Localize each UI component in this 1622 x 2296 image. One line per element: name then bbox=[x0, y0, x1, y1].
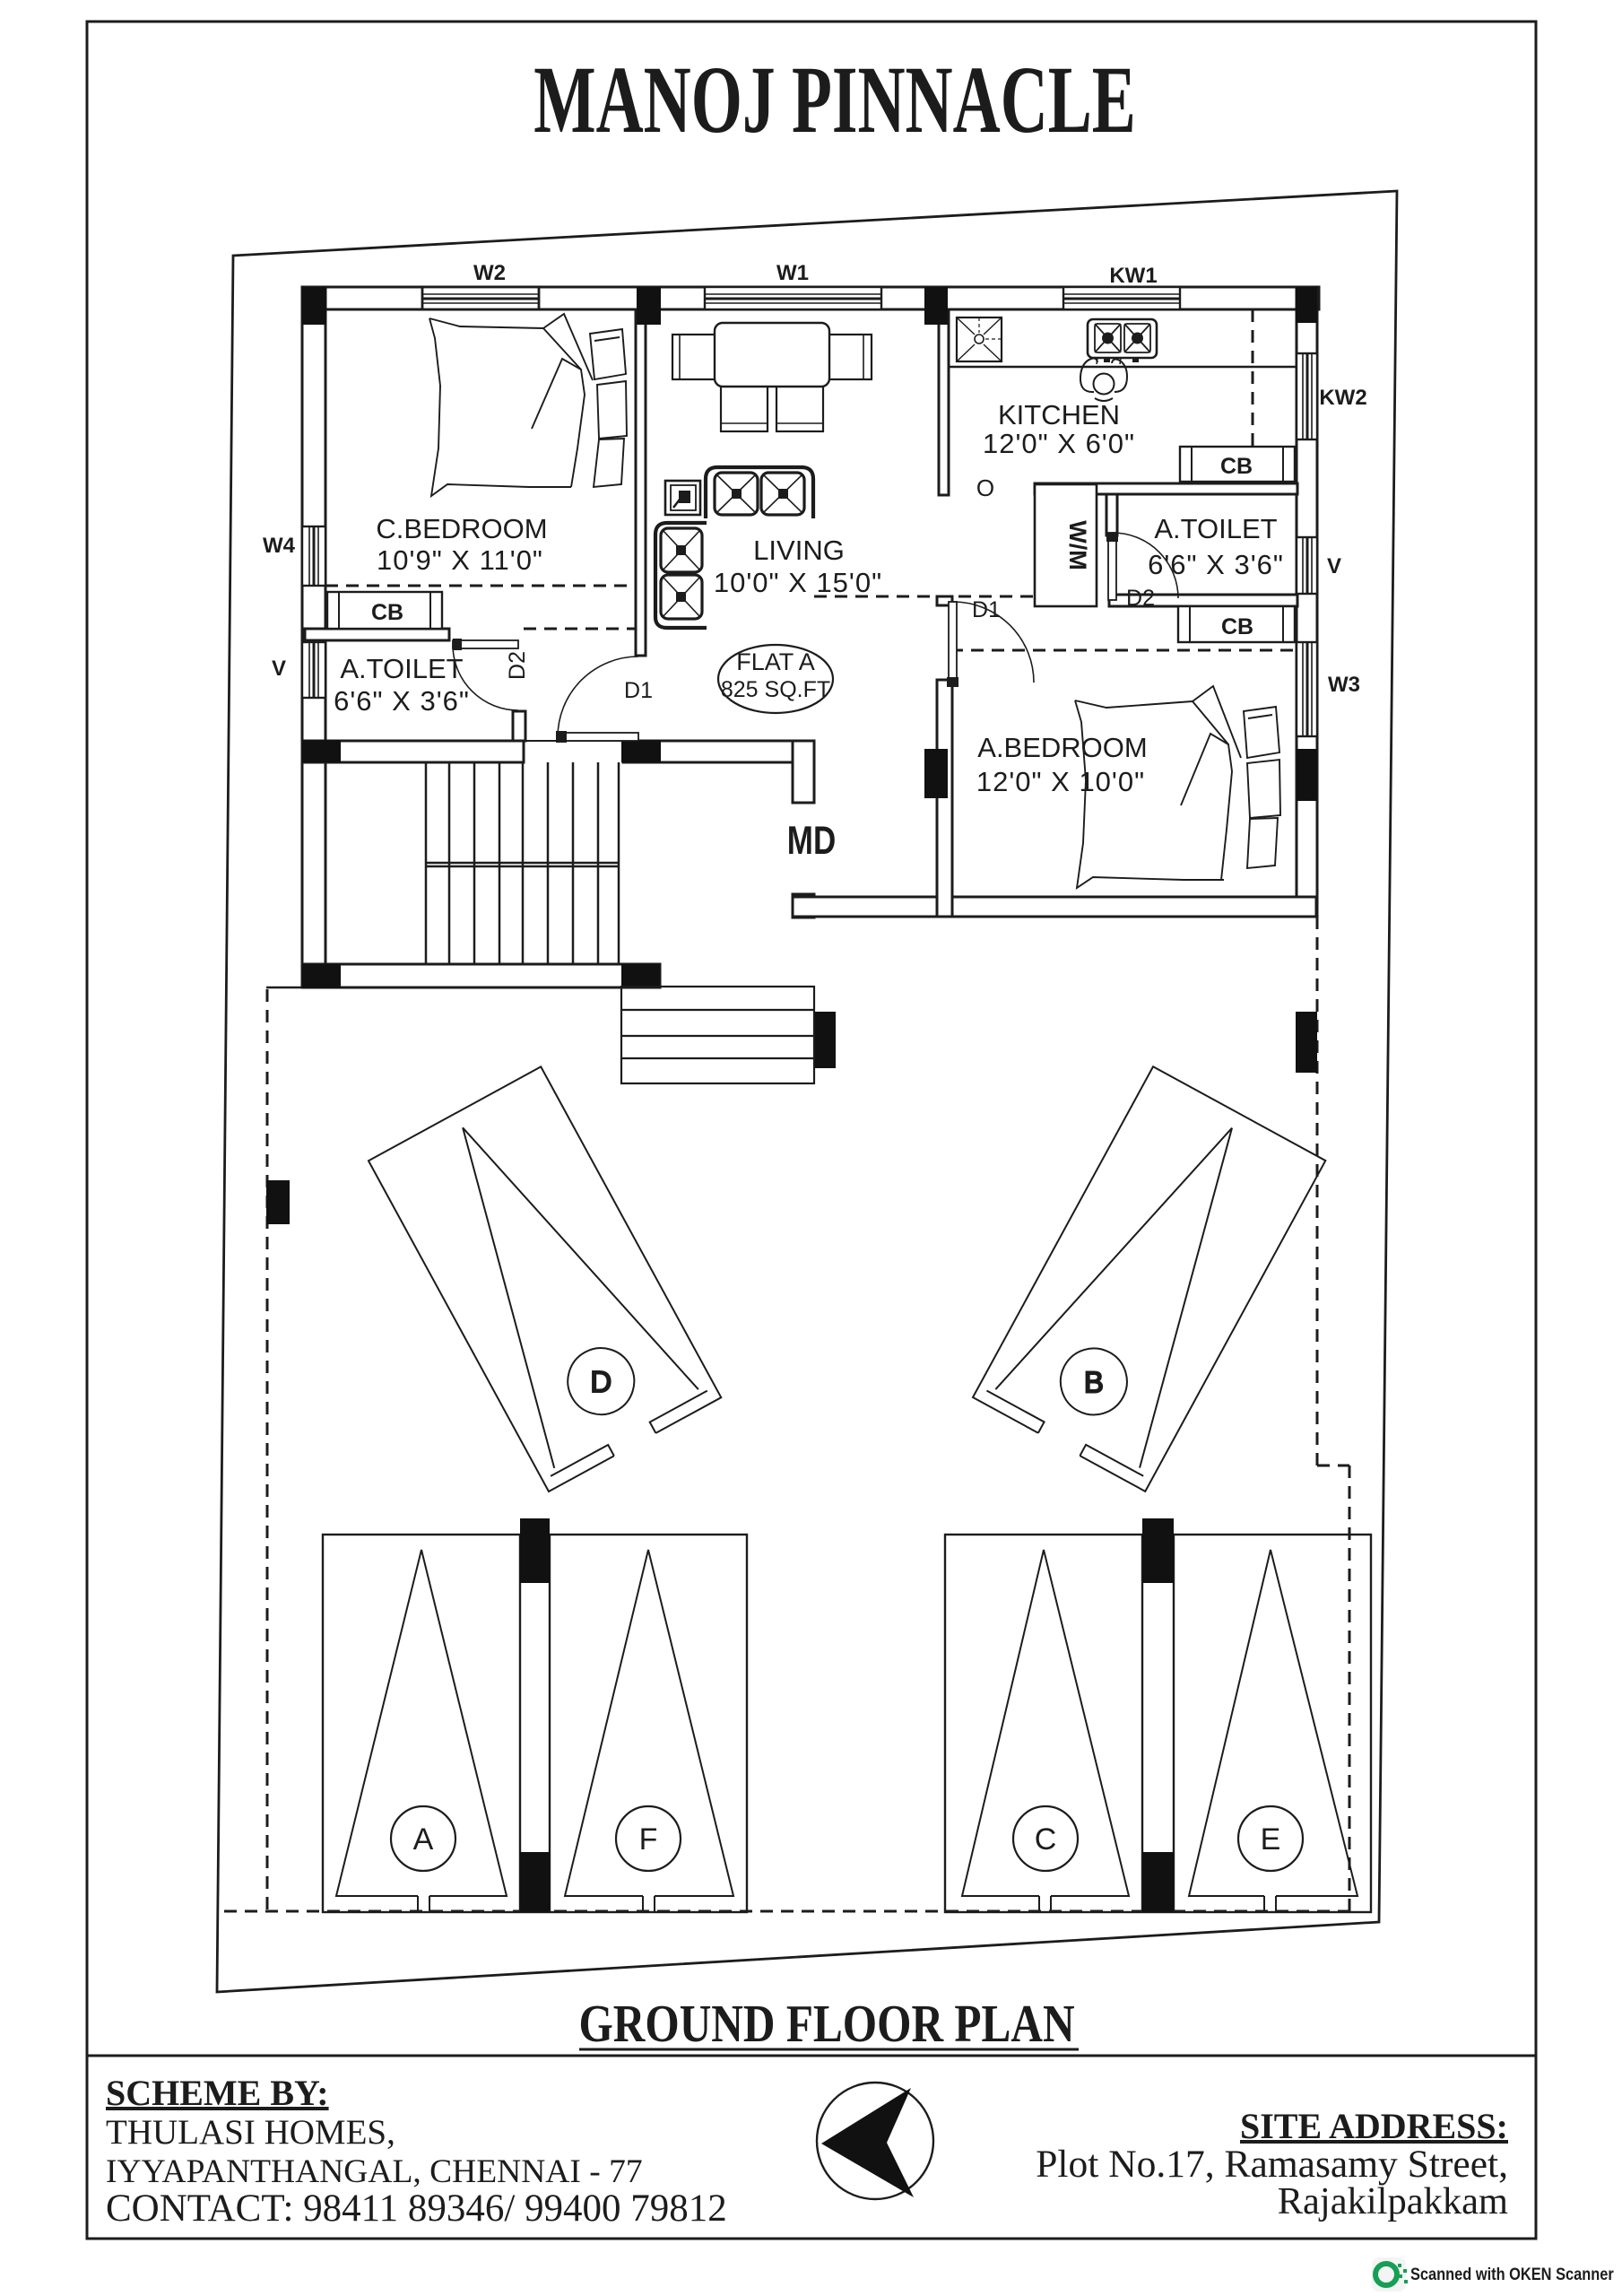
svg-text:B: B bbox=[1084, 1365, 1104, 1398]
svg-text:D2: D2 bbox=[1126, 586, 1155, 611]
svg-text:D2: D2 bbox=[505, 651, 530, 680]
svg-text:12'0" X 6'0": 12'0" X 6'0" bbox=[983, 428, 1135, 459]
svg-text:W4: W4 bbox=[263, 534, 296, 558]
svg-text:C: C bbox=[1035, 1822, 1057, 1857]
svg-text:12'0" X 10'0": 12'0" X 10'0" bbox=[976, 766, 1145, 797]
svg-text:W2: W2 bbox=[473, 261, 506, 285]
svg-text:A: A bbox=[413, 1822, 434, 1857]
svg-text:10'0" X 15'0": 10'0" X 15'0" bbox=[714, 567, 882, 598]
svg-text:A.TOILET: A.TOILET bbox=[340, 653, 463, 684]
svg-text:MD: MD bbox=[787, 818, 836, 863]
svg-text:D: D bbox=[590, 1365, 612, 1398]
svg-text:E: E bbox=[1261, 1822, 1281, 1857]
svg-text:Plot No.17, Ramasamy Street,: Plot No.17, Ramasamy Street, bbox=[1036, 2143, 1508, 2186]
svg-text:V: V bbox=[272, 657, 286, 681]
svg-text:6'6" X 3'6": 6'6" X 3'6" bbox=[1148, 549, 1284, 580]
svg-text:KITCHEN: KITCHEN bbox=[998, 399, 1120, 430]
svg-text:CONTACT: 98411 89346/ 99400 79: CONTACT: 98411 89346/ 99400 79812 bbox=[106, 2187, 727, 2230]
svg-text:SCHEME BY:: SCHEME BY: bbox=[106, 2073, 329, 2113]
svg-text:KW2: KW2 bbox=[1319, 386, 1366, 410]
svg-text:C.BEDROOM: C.BEDROOM bbox=[376, 513, 547, 544]
svg-text:Scanned with OKEN Scanner: Scanned with OKEN Scanner bbox=[1410, 2265, 1614, 2284]
svg-text:GROUND FLOOR PLAN: GROUND FLOOR PLAN bbox=[578, 1994, 1074, 2053]
svg-text:6'6" X 3'6": 6'6" X 3'6" bbox=[334, 685, 470, 717]
svg-text:W/M: W/M bbox=[1064, 520, 1091, 570]
svg-text:SITE ADDRESS:: SITE ADDRESS: bbox=[1240, 2106, 1508, 2146]
svg-text:LIVING: LIVING bbox=[753, 535, 845, 566]
svg-text:O: O bbox=[976, 474, 994, 501]
svg-text:W1: W1 bbox=[776, 261, 809, 285]
svg-text:MANOJ PINNACLE: MANOJ PINNACLE bbox=[533, 47, 1136, 153]
svg-text:CB: CB bbox=[1221, 614, 1253, 639]
svg-text:D1: D1 bbox=[972, 597, 1001, 622]
svg-text:THULASI HOMES,: THULASI HOMES, bbox=[106, 2113, 395, 2152]
svg-text:F: F bbox=[639, 1822, 658, 1857]
svg-text:CB: CB bbox=[1220, 454, 1253, 479]
svg-text:Rajakilpakkam: Rajakilpakkam bbox=[1278, 2180, 1508, 2222]
svg-text:FLAT A: FLAT A bbox=[736, 648, 815, 675]
svg-text:10'9" X 11'0": 10'9" X 11'0" bbox=[377, 544, 543, 576]
svg-text:A.BEDROOM: A.BEDROOM bbox=[977, 732, 1147, 763]
svg-text:D1: D1 bbox=[624, 678, 653, 703]
svg-text:825 SQ.FT: 825 SQ.FT bbox=[721, 677, 830, 702]
svg-text:V: V bbox=[1327, 554, 1341, 578]
svg-text:W3: W3 bbox=[1328, 673, 1360, 697]
svg-text:IYYAPANTHANGAL, CHENNAI - 77: IYYAPANTHANGAL, CHENNAI - 77 bbox=[106, 2153, 643, 2190]
svg-text:KW1: KW1 bbox=[1109, 264, 1157, 288]
svg-text:CB: CB bbox=[371, 600, 403, 625]
svg-text:A.TOILET: A.TOILET bbox=[1154, 513, 1277, 544]
